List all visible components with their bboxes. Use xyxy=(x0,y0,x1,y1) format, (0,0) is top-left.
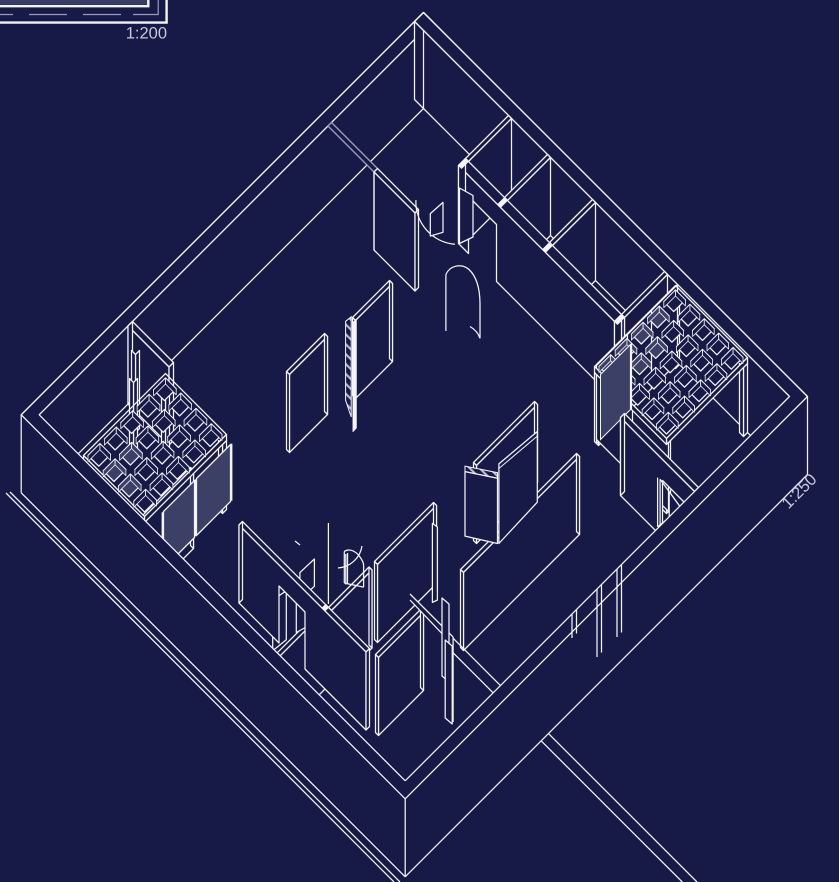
svg-text:1:200: 1:200 xyxy=(126,25,167,43)
